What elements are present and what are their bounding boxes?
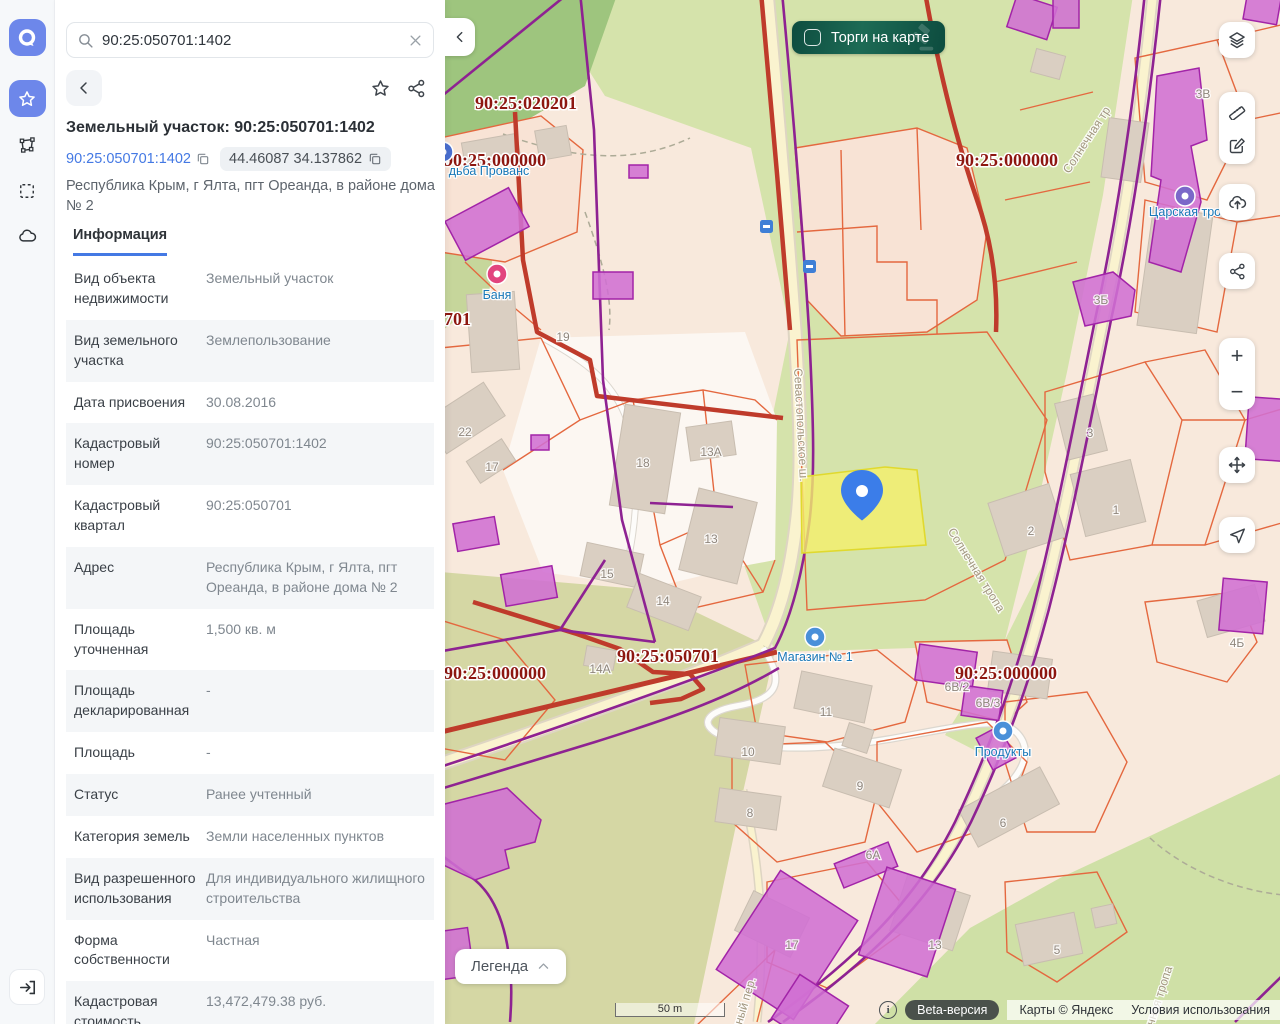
info-value: 13,472,479.38 руб. [206,992,426,1024]
poi-icon-glyph [812,634,819,641]
logo-icon [15,26,39,50]
map-share-button[interactable] [1219,253,1255,289]
info-value: 30.08.2016 [206,393,426,413]
poi-label: Магазин № 1 [777,650,853,664]
zoom-in-glyph: + [1231,343,1244,369]
house-number: 6 [1000,816,1007,830]
info-label: Площадь декларированная [74,681,206,721]
house-number: 22 [458,425,472,439]
house-number: 17 [785,938,799,952]
map-attribution: i Beta-версия Карты © Яндекс Условия исп… [879,1000,1280,1020]
info-row: Категория земельЗемли населенных пунктов [66,816,434,858]
cloud-upload-icon [1227,192,1248,213]
house-number: 14А [589,662,610,676]
house-number: 1 [1113,503,1120,517]
login-button[interactable] [10,970,44,1004]
collapse-panel-button[interactable] [445,18,475,56]
info-value: Ранее учтенный [206,785,426,805]
house-number: 18 [636,456,650,470]
info-row: Кадастровый квартал90:25:050701 [66,485,434,547]
map-canvas[interactable]: 90:25:02020190:25:00000090:25:00000090:2… [445,0,1280,1024]
star-outline-icon [370,78,391,99]
info-row: Дата присвоения30.08.2016 [66,382,434,424]
info-value: Частная [206,931,426,971]
info-value: - [206,681,426,721]
star-icon [17,89,37,109]
legend-label: Легенда [471,958,528,975]
icon-rail [0,0,55,1024]
zoom-out-button[interactable]: − [1219,374,1255,410]
info-row: Кадастровый номер90:25:050701:1402 [66,423,434,485]
locate-button[interactable] [1219,517,1255,553]
quarter-label: 90:25:000000 [445,663,546,683]
zoom-control: + − [1219,338,1255,410]
house-number: 3 [1087,426,1094,440]
info-row: СтатусРанее учтенный [66,774,434,816]
house-number: 2 [1028,524,1035,538]
house-number: 3В [1196,87,1211,101]
info-value: - [206,743,426,763]
info-label: Кадастровый квартал [74,496,206,536]
house-number: 6А [866,848,881,862]
info-label: Вид земельного участка [74,331,206,371]
page-title: Земельный участок: 90:25:050701:1402 [66,119,434,137]
quarter-label: 90:25:050701 [617,646,719,666]
coordinates-chip[interactable]: 44.46087 34.137862 [220,147,391,171]
search-box [66,22,434,58]
info-label: Статус [74,785,206,805]
cloud-icon [17,226,38,247]
layers-button[interactable] [1219,22,1255,58]
search-input[interactable] [102,32,408,49]
sidebar-item-measure-area[interactable] [9,126,46,163]
info-label: Кадастровая стоимость [74,992,206,1024]
sidebar-item-select-area[interactable] [9,172,46,209]
scale-bar: 50 m [615,1003,725,1017]
info-row: Кадастровая стоимость13,472,479.38 руб. [66,981,434,1024]
copy-icon[interactable] [196,152,210,166]
info-icon[interactable]: i [879,1001,897,1019]
house-number: 4Б [1230,636,1245,650]
torgi-checkbox[interactable] [804,29,821,46]
info-label: Вид объекта недвижимости [74,269,206,309]
pan-control [1219,447,1255,483]
info-label: Форма собственности [74,931,206,971]
house-number: 8 [747,806,754,820]
house-number: 9 [857,779,864,793]
house-number: 14 [656,594,670,608]
info-row: Площадь декларированная- [66,670,434,732]
scale-label: 50 m [658,1003,682,1015]
edit-button[interactable] [1219,128,1255,164]
poi-label: Баня [483,288,512,302]
house-number: 10 [741,745,755,759]
info-row: Площадь- [66,732,434,774]
info-value: Землепользование [206,331,426,371]
map-container: 90:25:02020190:25:00000090:25:00000090:2… [445,0,1280,1024]
chevron-up-icon [537,960,550,973]
pan-button[interactable] [1219,447,1255,483]
edit-icon [1227,136,1247,156]
house-number: 17 [485,460,499,474]
house-number: 6В/3 [976,696,1001,710]
map-copyright: Карты © Яндекс [1019,1003,1113,1017]
share-button[interactable] [398,70,434,106]
ruler-button[interactable] [1219,92,1255,128]
info-label: Площадь [74,743,206,763]
object-panel: Земельный участок: 90:25:050701:1402 90:… [55,0,445,1024]
move-icon [1227,455,1247,475]
back-button[interactable] [66,70,102,106]
chevron-left-icon [76,80,92,96]
share-icon [406,78,427,99]
copy-icon[interactable] [368,152,382,166]
info-value: 90:25:050701:1402 [206,434,426,474]
house-number: 13А [700,445,721,459]
layers-control [1219,22,1255,58]
chevron-left-icon [453,30,467,44]
quarter-label: 90:25:000000 [955,663,1057,683]
terms-link[interactable]: Условия использования [1131,1003,1270,1017]
cadastral-number-text: 90:25:050701:1402 [66,151,191,167]
favorite-button[interactable] [362,70,398,106]
chips-row: 90:25:050701:1402 44.46087 34.137862 [66,147,391,171]
info-value: Земли населенных пунктов [206,827,426,847]
torgi-toggle[interactable]: Торги на карте [792,21,945,54]
info-table: Вид объекта недвижимостиЗемельный участо… [66,258,434,1024]
info-row: Площадь уточненная1,500 кв. м [66,609,434,671]
share-icon [1228,262,1247,281]
login-icon [18,978,37,997]
info-value: 90:25:050701 [206,496,426,536]
sidebar-item-cloud[interactable] [9,218,46,255]
house-number: 13 [928,938,942,952]
coordinates-text: 44.46087 34.137862 [229,151,362,167]
draw-tools [1219,92,1255,164]
sidebar-item-favorites[interactable] [9,80,46,117]
info-value: Для индивидуального жилищного строительс… [206,869,426,909]
quarter-label: 90:25:000000 [956,150,1058,170]
info-value: Земельный участок [206,269,426,309]
dashed-select-icon [17,181,37,201]
house-number: 11 [820,705,833,719]
object-address: Республика Крым, г Ялта, пгт Ореанда, в … [66,176,438,216]
tab-information[interactable]: Информация [73,227,167,256]
info-row: Форма собственностиЧастная [66,920,434,982]
cloud-upload-button[interactable] [1219,184,1255,220]
navigate-icon [1228,526,1247,545]
clear-search-icon[interactable] [408,33,423,48]
info-label: Площадь уточненная [74,620,206,660]
gavel-icon [905,23,939,53]
info-row: Вид земельного участкаЗемлепользование [66,320,434,382]
polygon-tool-icon [17,135,37,155]
layers-icon [1227,30,1247,50]
info-row: Вид объекта недвижимостиЗемельный участо… [66,258,434,320]
info-label: Вид разрешенного использования [74,869,206,909]
locate-control [1219,517,1255,553]
app-logo[interactable] [9,19,46,56]
info-row: АдресРеспублика Крым, г Ялта, пгт Ореанд… [66,547,434,609]
info-row: Вид разрешенного использованияДля индиви… [66,858,434,920]
poi-label: Царская тро [1149,205,1221,219]
house-number: 5 [1054,943,1061,957]
poi-icon-glyph [1000,728,1007,735]
zoom-out-glyph: − [1231,379,1244,405]
info-label: Адрес [74,558,206,598]
beta-badge: Beta-версия [905,1000,999,1020]
search-icon [77,32,94,49]
panel-header [66,70,434,106]
info-label: Дата присвоения [74,393,206,413]
quarter-label: 90:25:020201 [475,93,577,113]
legend-button[interactable]: Легенда [455,949,566,984]
upload-control [1219,184,1255,220]
cadastral-number-link[interactable]: 90:25:050701:1402 [66,151,210,167]
ruler-icon [1227,100,1247,120]
share-control [1219,253,1255,289]
info-label: Кадастровый номер [74,434,206,474]
attribution-strip: Карты © Яндекс Условия использования [1007,1000,1280,1020]
info-value: 1,500 кв. м [206,620,426,660]
info-label: Категория земель [74,827,206,847]
poi-label: Продукты [975,745,1031,759]
house-number: 19 [556,330,570,344]
house-number: 6В/2 [945,680,970,694]
quarter-label: 90:25:050701 [445,309,471,329]
house-number: 3Б [1094,293,1109,307]
poi-label: дьба Прованс [449,164,530,178]
house-number: 13 [704,532,718,546]
info-value: Республика Крым, г Ялта, пгт Ореанда, в … [206,558,426,598]
poi-icon-glyph [1182,193,1189,200]
poi-icon-glyph [494,271,501,278]
house-number: 15 [600,567,614,581]
zoom-in-button[interactable]: + [1219,338,1255,374]
